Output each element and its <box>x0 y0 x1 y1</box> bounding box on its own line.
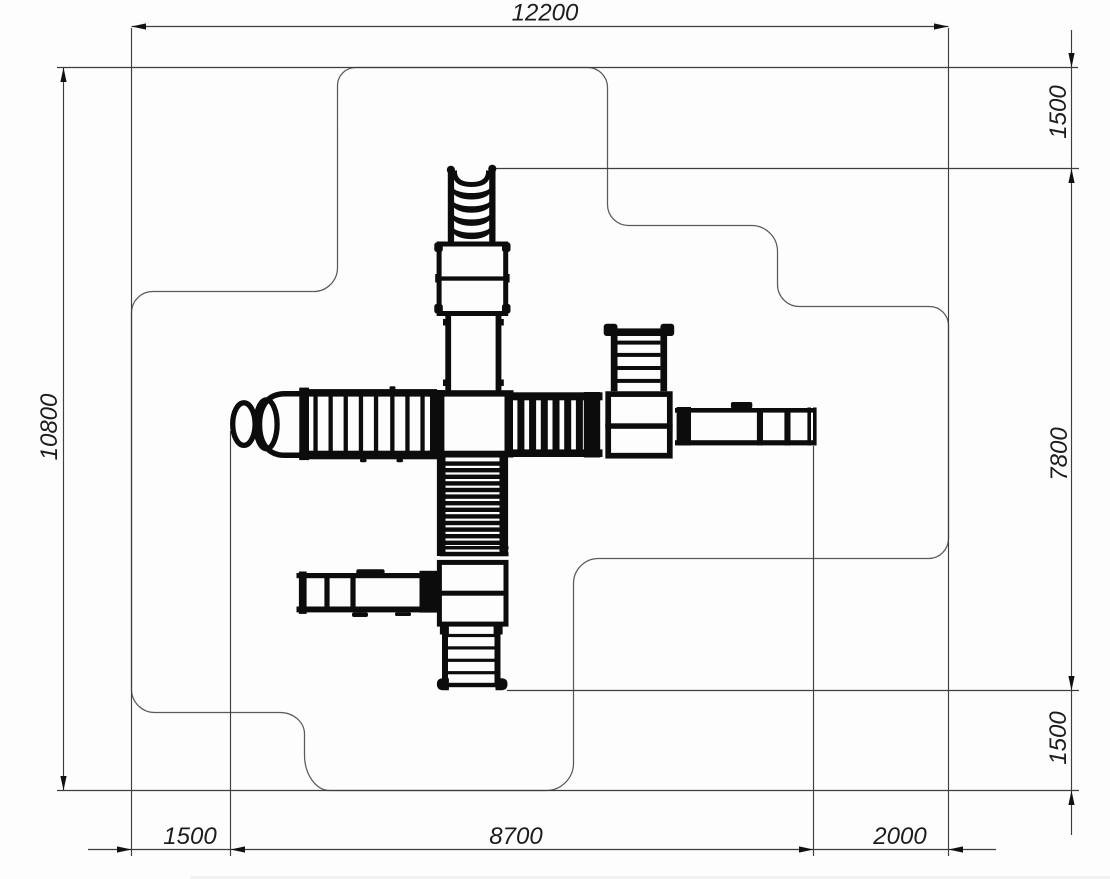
svg-text:10800: 10800 <box>36 393 63 460</box>
svg-text:7800: 7800 <box>1046 427 1073 481</box>
svg-text:1500: 1500 <box>163 823 217 850</box>
svg-text:2000: 2000 <box>872 823 927 850</box>
svg-text:1500: 1500 <box>1045 85 1072 139</box>
svg-text:12200: 12200 <box>512 0 579 27</box>
svg-text:1500: 1500 <box>1045 711 1072 765</box>
svg-text:8700: 8700 <box>489 823 543 850</box>
